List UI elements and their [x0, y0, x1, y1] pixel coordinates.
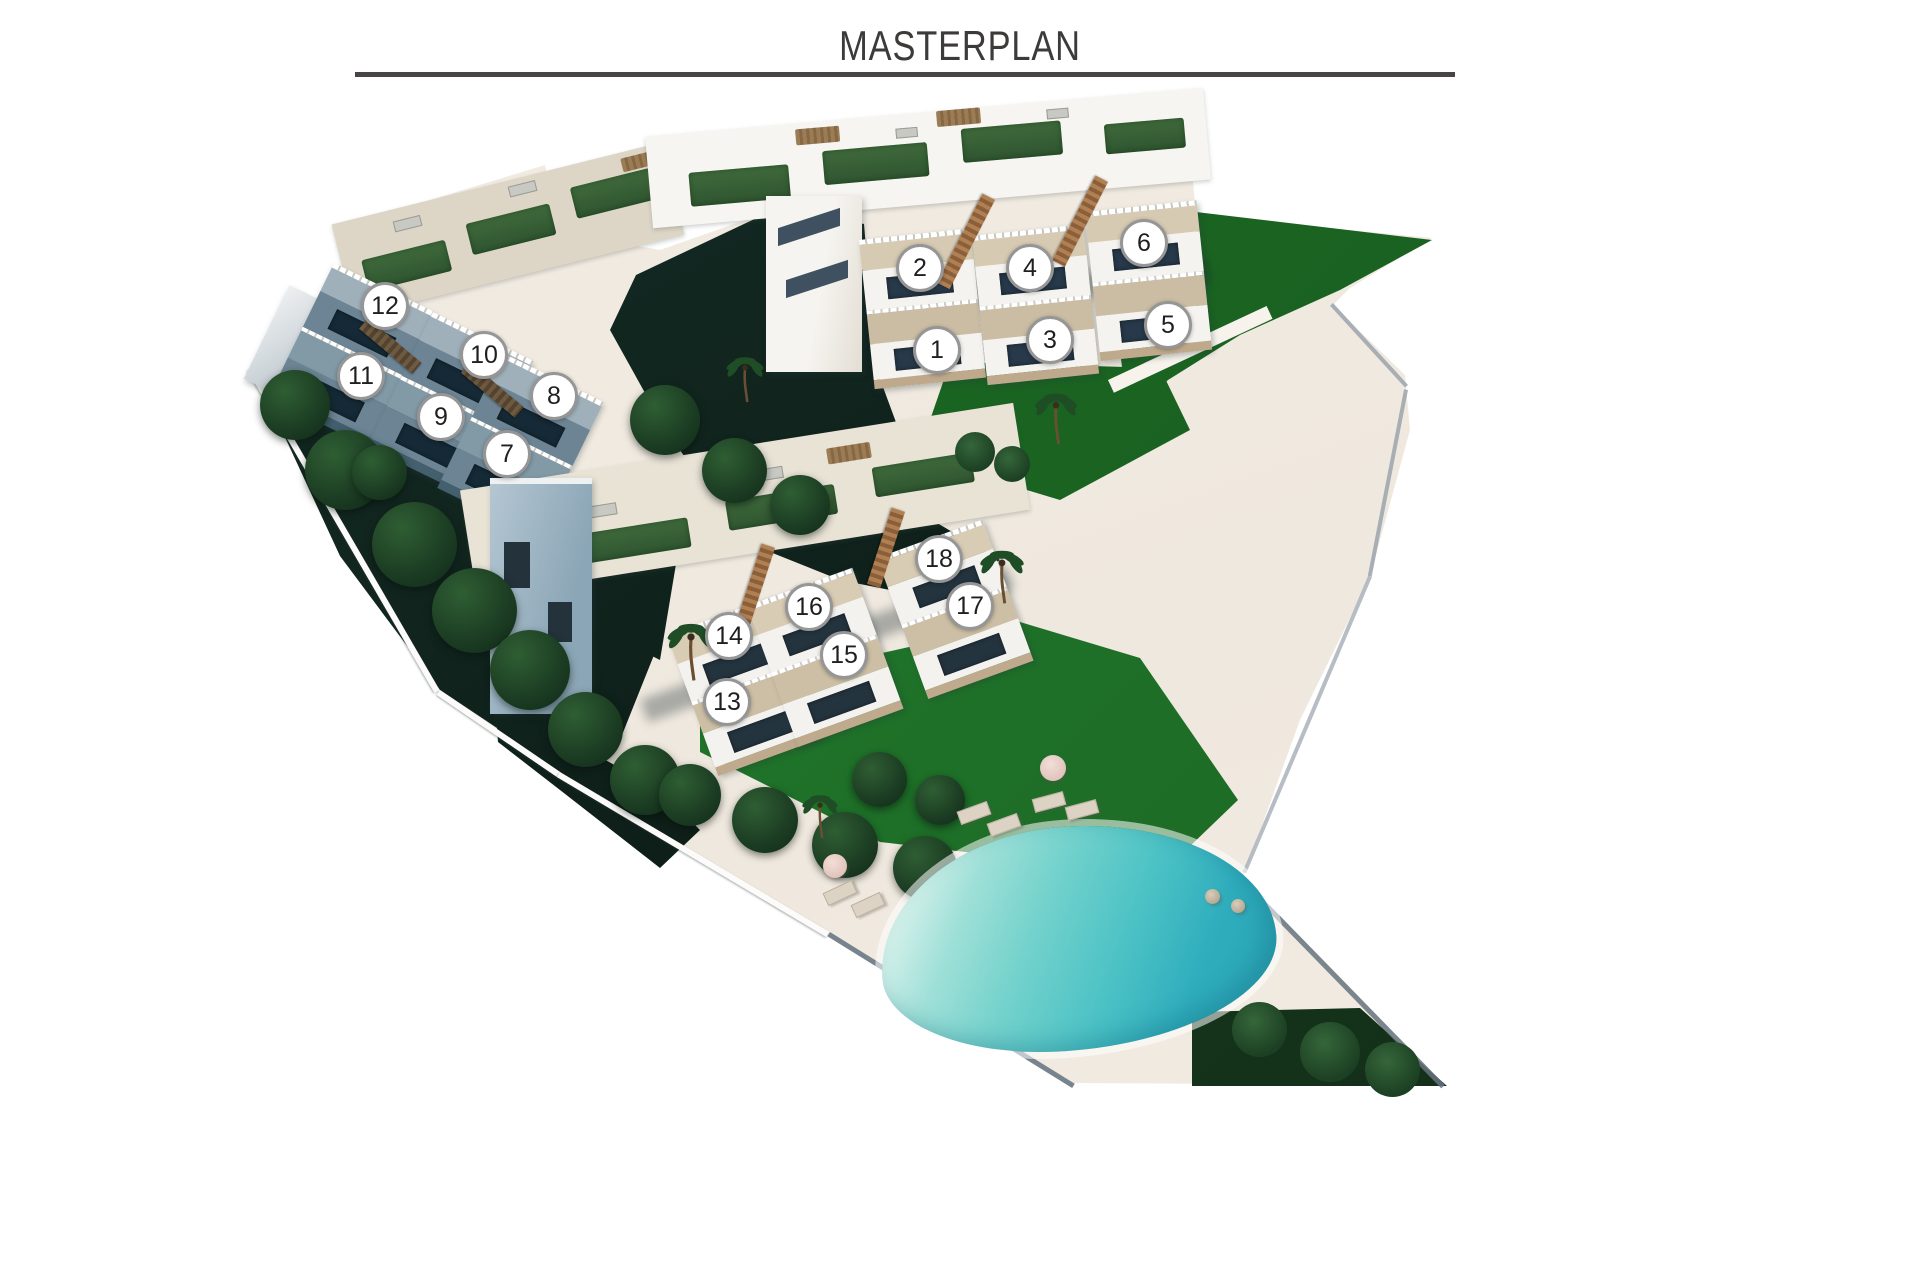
markers-layer: 123456789101112131415161718: [0, 0, 1920, 1280]
unit-marker-number: 4: [1023, 256, 1037, 281]
unit-marker-10[interactable]: 10: [460, 331, 508, 379]
unit-marker-3[interactable]: 3: [1026, 316, 1074, 364]
unit-marker-14[interactable]: 14: [705, 612, 753, 660]
unit-marker-9[interactable]: 9: [417, 393, 465, 441]
unit-marker-8[interactable]: 8: [530, 372, 578, 420]
unit-marker-6[interactable]: 6: [1120, 219, 1168, 267]
unit-marker-number: 16: [795, 595, 823, 620]
unit-marker-number: 10: [470, 343, 498, 368]
masterplan-stage: MASTERPLAN: [0, 0, 1920, 1280]
unit-marker-15[interactable]: 15: [820, 631, 868, 679]
unit-marker-11[interactable]: 11: [337, 352, 385, 400]
unit-marker-number: 9: [434, 405, 448, 430]
unit-marker-number: 13: [713, 690, 741, 715]
unit-marker-12[interactable]: 12: [361, 282, 409, 330]
unit-marker-number: 12: [371, 294, 399, 319]
unit-marker-18[interactable]: 18: [915, 535, 963, 583]
unit-marker-number: 11: [348, 364, 374, 389]
unit-marker-number: 14: [715, 624, 743, 649]
unit-marker-number: 1: [930, 338, 944, 363]
unit-marker-number: 5: [1161, 313, 1175, 338]
unit-marker-13[interactable]: 13: [703, 678, 751, 726]
unit-marker-number: 7: [500, 442, 514, 467]
unit-marker-4[interactable]: 4: [1006, 244, 1054, 292]
unit-marker-number: 8: [547, 384, 561, 409]
unit-marker-number: 6: [1137, 231, 1151, 256]
unit-marker-number: 3: [1043, 328, 1057, 353]
unit-marker-1[interactable]: 1: [913, 326, 961, 374]
unit-marker-number: 15: [830, 643, 858, 668]
unit-marker-number: 2: [913, 256, 927, 281]
unit-marker-number: 18: [925, 547, 953, 572]
unit-marker-5[interactable]: 5: [1144, 301, 1192, 349]
unit-marker-7[interactable]: 7: [483, 430, 531, 478]
unit-marker-number: 17: [956, 594, 984, 619]
unit-marker-2[interactable]: 2: [896, 244, 944, 292]
unit-marker-16[interactable]: 16: [785, 583, 833, 631]
unit-marker-17[interactable]: 17: [946, 582, 994, 630]
